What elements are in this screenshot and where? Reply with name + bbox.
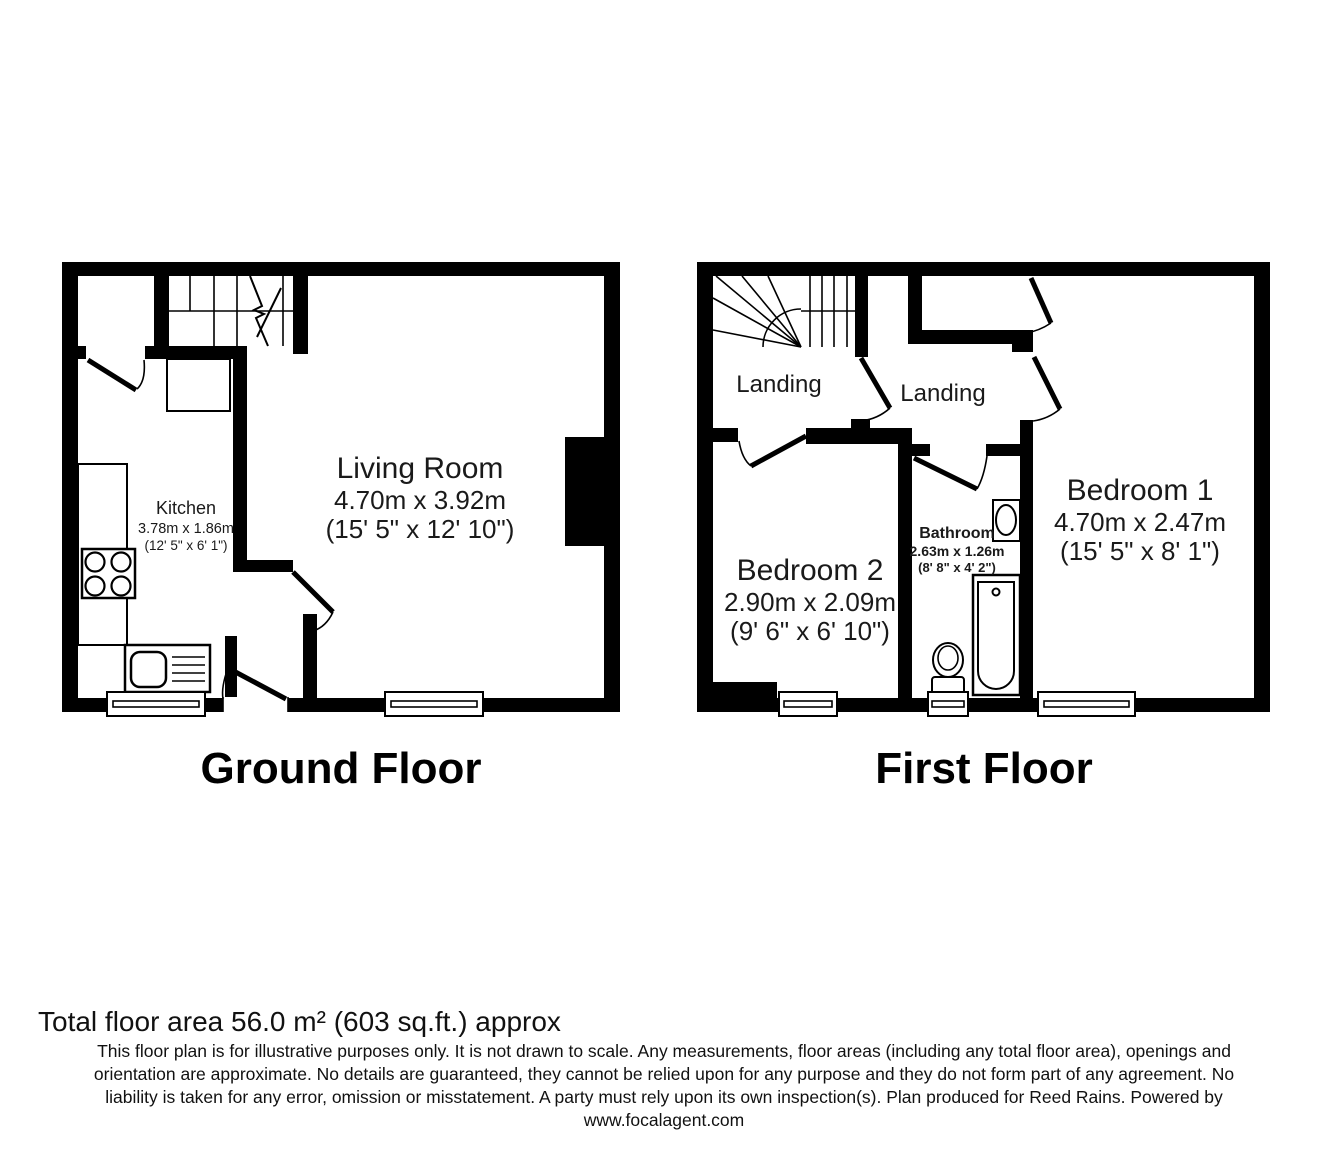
bedroom2-label: Bedroom 2 [737, 554, 884, 587]
bedroom1-dims-imperial: (15' 5" x 8' 1") [1060, 536, 1220, 566]
kitchen-back-door [88, 360, 144, 390]
landing-door [861, 358, 890, 421]
ground-stairs-icon [169, 276, 293, 346]
floorplan-page: Kitchen 3.78m x 1.86m (12' 5" x 6' 1") L… [0, 0, 1328, 1151]
disclaimer-line-1: This floor plan is for illustrative purp… [0, 1040, 1328, 1063]
first-stairs-icon [713, 276, 855, 347]
kitchen-label: Kitchen [156, 498, 216, 518]
bedroom1-dims-metric: 4.70m x 2.47m [1054, 507, 1226, 537]
cupboard-door [1026, 278, 1051, 333]
bathroom-basin-icon [993, 500, 1020, 541]
kitchen-window [107, 692, 205, 716]
first-floor-plan: Landing Landing Bedroom 2 2.90m x 2.09m … [697, 262, 1270, 793]
living-room-label: Living Room [337, 452, 504, 485]
landing-left-label: Landing [736, 371, 821, 398]
landing-right-label: Landing [900, 380, 985, 407]
first-floor-caption: First Floor [875, 744, 1093, 793]
bedroom2-dims-metric: 2.90m x 2.09m [724, 587, 896, 617]
kitchen-dims-metric: 3.78m x 1.86m [138, 521, 234, 537]
floorplan-drawing: Kitchen 3.78m x 1.86m (12' 5" x 6' 1") L… [0, 0, 1328, 1000]
chimney-breast [565, 437, 606, 546]
stove-icon [82, 549, 135, 598]
bedroom2-dims-imperial: (9' 6" x 6' 10") [730, 616, 890, 646]
bedroom1-window [1038, 692, 1135, 716]
kitchen-sink-icon [125, 645, 210, 692]
bedroom2-window [779, 692, 837, 716]
bathroom-door [914, 456, 987, 489]
bathroom-dims-imperial: (8' 8" x 4' 2") [918, 560, 996, 575]
toilet-icon [932, 643, 964, 694]
living-room-dims-imperial: (15' 5" x 12' 10") [326, 514, 515, 544]
bathtub-icon [973, 575, 1020, 695]
ground-floor-plan: Kitchen 3.78m x 1.86m (12' 5" x 6' 1") L… [62, 262, 620, 793]
living-room-dims-metric: 4.70m x 3.92m [334, 485, 506, 515]
kitchen-dims-imperial: (12' 5" x 6' 1") [144, 538, 227, 553]
bathroom-label: Bathroom [919, 525, 995, 542]
disclaimer-line-2: orientation are approximate. No details … [0, 1063, 1328, 1086]
living-room-window [385, 692, 483, 716]
total-floor-area: Total floor area 56.0 m² (603 sq.ft.) ap… [38, 1006, 561, 1038]
bathroom-window [928, 692, 968, 716]
ground-floor-caption: Ground Floor [200, 744, 481, 793]
bedroom2-door [739, 436, 806, 466]
disclaimer-line-3: liability is taken for any error, omissi… [0, 1086, 1328, 1109]
bedroom1-door [1033, 357, 1060, 421]
bedroom1-label: Bedroom 1 [1067, 474, 1214, 507]
bathroom-dims-metric: 2.63m x 1.26m [910, 543, 1005, 559]
understairs-cupboard [167, 359, 230, 411]
disclaimer: This floor plan is for illustrative purp… [0, 1040, 1328, 1132]
disclaimer-website: www.focalagent.com [0, 1109, 1328, 1132]
